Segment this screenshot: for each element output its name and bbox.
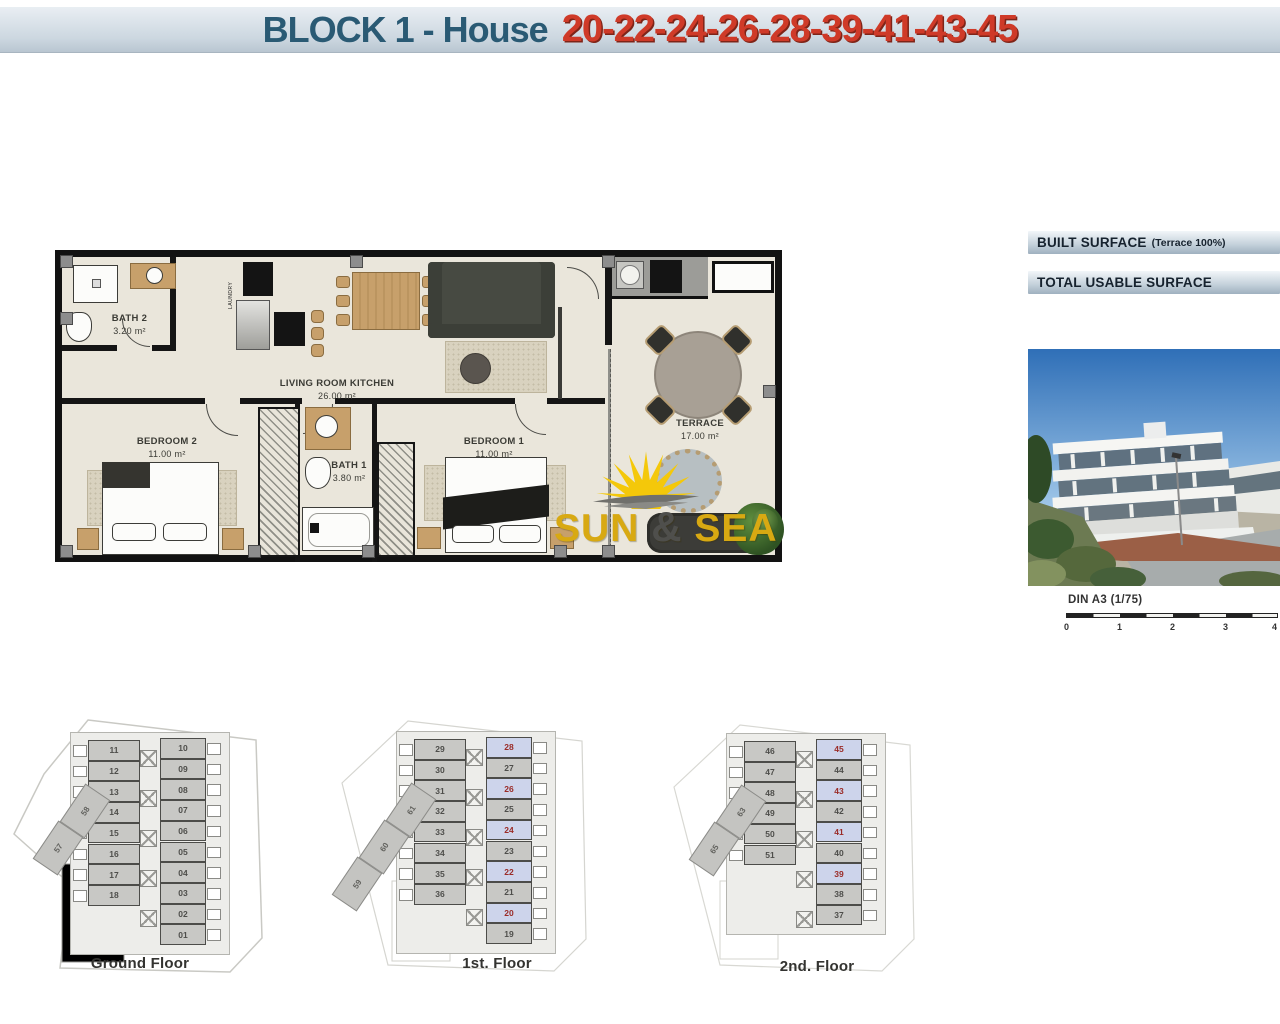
balcony-stub xyxy=(533,783,547,795)
balcony-stub xyxy=(207,929,221,941)
miniplan-ground-floor: 1112131415161718100908070605040302015857 xyxy=(26,720,266,986)
elevator-box xyxy=(466,869,483,886)
balcony-stub xyxy=(207,826,221,838)
unit-46: 46 xyxy=(744,741,796,762)
wall xyxy=(62,398,205,404)
unit-04: 04 xyxy=(160,862,206,883)
room-label-living: LIVING ROOM KITCHEN 26.00 m² xyxy=(247,377,427,404)
balcony-stub xyxy=(863,806,877,818)
unit-47: 47 xyxy=(744,762,796,783)
elevator-box xyxy=(796,751,813,768)
block-title: BLOCK 1 - House xyxy=(263,9,548,51)
door-arc xyxy=(515,404,546,435)
unit-01: 01 xyxy=(160,924,206,945)
elevator-box xyxy=(140,830,157,847)
balcony-stub xyxy=(533,846,547,858)
balcony-stub xyxy=(207,847,221,859)
balcony-stub xyxy=(73,745,87,757)
fridge xyxy=(243,262,273,296)
unit-34: 34 xyxy=(414,843,466,864)
unit-16: 16 xyxy=(88,844,140,865)
balcony-stub xyxy=(863,765,877,777)
kitchen-island xyxy=(274,312,305,346)
balcony-stub xyxy=(533,866,547,878)
scale-tick: 1 xyxy=(1117,622,1122,632)
unit-30: 30 xyxy=(414,760,466,781)
unit-36: 36 xyxy=(414,884,466,905)
house-numbers: 20-22-24-26-28-39-41-43-45 xyxy=(562,8,1018,51)
elevator-box xyxy=(140,750,157,767)
nightstand xyxy=(222,528,244,550)
scale-tick: 3 xyxy=(1223,622,1228,632)
pillar xyxy=(350,255,363,268)
unit-23: 23 xyxy=(486,841,532,862)
unit-21: 21 xyxy=(486,882,532,903)
pillow xyxy=(112,523,156,541)
second-floor-label: 2nd. Floor xyxy=(737,958,897,975)
pillar xyxy=(60,255,73,268)
unit-29: 29 xyxy=(414,739,466,760)
unit-39: 39 xyxy=(816,863,862,884)
balcony-stub xyxy=(533,887,547,899)
bath-tap xyxy=(310,523,319,533)
unit-50: 50 xyxy=(744,824,796,845)
unit-35: 35 xyxy=(414,863,466,884)
miniplan-1st-floor: 2930313233343536282726252423222120196160… xyxy=(352,719,592,985)
wall xyxy=(558,307,562,399)
ac-unit xyxy=(616,261,644,289)
elevator-box xyxy=(466,749,483,766)
pillow xyxy=(499,525,541,543)
elevator-box xyxy=(140,870,157,887)
unit-28: 28 xyxy=(486,737,532,758)
balcony-stub xyxy=(863,744,877,756)
balcony-stub xyxy=(533,742,547,754)
title-bar: BLOCK 1 - House 20-22-24-26-28-39-41-43-… xyxy=(0,7,1280,53)
building-photo xyxy=(1028,349,1280,586)
unit-05: 05 xyxy=(160,842,206,863)
room-label-terrace: TERRACE 17.00 m² xyxy=(650,417,750,444)
balcony-stub xyxy=(399,744,413,756)
balcony-stub xyxy=(207,888,221,900)
elevator-box xyxy=(796,831,813,848)
wall xyxy=(62,345,117,351)
balcony-stub xyxy=(207,743,221,755)
unit-20: 20 xyxy=(486,903,532,924)
unit-40: 40 xyxy=(816,843,862,864)
unit-11: 11 xyxy=(88,740,140,761)
built-surface-bar: BUILT SURFACE (Terrace 100%) xyxy=(1028,231,1280,254)
elevator-box xyxy=(796,871,813,888)
elevator-box xyxy=(466,829,483,846)
unit-25: 25 xyxy=(486,799,532,820)
balcony-stub xyxy=(863,848,877,860)
nightstand xyxy=(77,528,99,550)
balcony-stub xyxy=(207,805,221,817)
storage-box xyxy=(712,261,774,293)
elevator-box xyxy=(140,790,157,807)
unit-22: 22 xyxy=(486,861,532,882)
balcony-stub xyxy=(207,867,221,879)
bed2-throw xyxy=(102,462,150,488)
kitchen-cabinet xyxy=(236,300,270,350)
room-label-bath2: BATH 2 3.20 m² xyxy=(82,312,177,339)
door-arc xyxy=(206,404,238,436)
room-label-bedroom1: BEDROOM 1 11.00 m² xyxy=(434,435,554,462)
unit-10: 10 xyxy=(160,738,206,759)
balcony-stub xyxy=(729,850,743,862)
wardrobe xyxy=(258,407,300,557)
scale-tick: 0 xyxy=(1064,622,1069,632)
bath1-sink xyxy=(315,415,338,438)
dining-table xyxy=(352,272,420,330)
pillar xyxy=(248,545,261,558)
miniplan-2nd-floor: 4647484950514544434241403938376365 xyxy=(682,721,922,987)
elevator-box xyxy=(466,789,483,806)
unit-37: 37 xyxy=(816,905,862,926)
unit-06: 06 xyxy=(160,821,206,842)
balcony-stub xyxy=(207,784,221,796)
unit-27: 27 xyxy=(486,758,532,779)
balcony-stub xyxy=(533,804,547,816)
chair xyxy=(336,295,350,307)
unit-17: 17 xyxy=(88,864,140,885)
balcony-stub xyxy=(863,785,877,797)
pillar xyxy=(763,385,776,398)
scale-tick: 4 xyxy=(1272,622,1277,632)
unit-19: 19 xyxy=(486,923,532,944)
din-scale-label: DIN A3 (1/75) xyxy=(1068,594,1142,606)
balcony-stub xyxy=(533,908,547,920)
unit-38: 38 xyxy=(816,884,862,905)
unit-41: 41 xyxy=(816,822,862,843)
elevator-box xyxy=(466,909,483,926)
elevator-box xyxy=(796,911,813,928)
wall xyxy=(547,398,605,404)
chair xyxy=(336,276,350,288)
bath2-sink xyxy=(146,267,163,284)
wall xyxy=(605,257,612,345)
boiler xyxy=(650,260,682,293)
unit-03: 03 xyxy=(160,883,206,904)
sun-logo-icon xyxy=(562,445,730,509)
wall xyxy=(152,345,172,351)
balcony-stub xyxy=(533,928,547,940)
pouf xyxy=(460,353,491,384)
balcony-stub xyxy=(73,766,87,778)
sofa xyxy=(428,262,555,338)
balcony-stub xyxy=(399,765,413,777)
balcony-stub xyxy=(533,763,547,775)
main-floor-plan: LAUNDRY xyxy=(55,250,782,562)
unit-18: 18 xyxy=(88,885,140,906)
elevator-box xyxy=(796,791,813,808)
stool xyxy=(311,310,324,323)
unit-09: 09 xyxy=(160,759,206,780)
pillar xyxy=(362,545,375,558)
unit-15: 15 xyxy=(88,823,140,844)
watermark-text: SUN & SEA xyxy=(554,503,778,551)
pillar xyxy=(60,312,73,325)
room-label-bedroom2: BEDROOM 2 11.00 m² xyxy=(107,435,227,462)
stool xyxy=(311,344,324,357)
balcony-stub xyxy=(863,889,877,901)
balcony-stub xyxy=(863,910,877,922)
unit-44: 44 xyxy=(816,760,862,781)
nightstand xyxy=(417,527,441,549)
unit-08: 08 xyxy=(160,779,206,800)
chair xyxy=(336,314,350,326)
balcony-stub xyxy=(729,746,743,758)
stool xyxy=(311,327,324,340)
balcony-stub xyxy=(73,869,87,881)
pillar xyxy=(602,255,615,268)
unit-24: 24 xyxy=(486,820,532,841)
shower-drain xyxy=(92,279,101,288)
laundry-label: LAUNDRY xyxy=(228,267,234,309)
balcony-stub xyxy=(729,767,743,779)
unit-33: 33 xyxy=(414,822,466,843)
pillar xyxy=(60,545,73,558)
room-label-bath1: BATH 1 3.80 m² xyxy=(299,459,399,486)
entrance-door-arc xyxy=(567,267,599,299)
unit-26: 26 xyxy=(486,778,532,799)
page: BLOCK 1 - House 20-22-24-26-28-39-41-43-… xyxy=(0,0,1280,1024)
balcony-stub xyxy=(533,825,547,837)
balcony-stub xyxy=(399,848,413,860)
balcony-stub xyxy=(399,868,413,880)
unit-43: 43 xyxy=(816,780,862,801)
ground-floor-label: Ground Floor xyxy=(60,955,220,972)
balcony-stub xyxy=(207,909,221,921)
balcony-stub xyxy=(863,868,877,880)
balcony-stub xyxy=(73,849,87,861)
unit-07: 07 xyxy=(160,800,206,821)
pillow xyxy=(163,523,207,541)
unit-12: 12 xyxy=(88,761,140,782)
balcony-stub xyxy=(73,890,87,902)
scale-bar xyxy=(1066,613,1278,618)
unit-51: 51 xyxy=(744,845,796,866)
balcony-stub xyxy=(207,764,221,776)
total-usable-surface-bar: TOTAL USABLE SURFACE xyxy=(1028,271,1280,294)
unit-45: 45 xyxy=(816,739,862,760)
scale-tick: 2 xyxy=(1170,622,1175,632)
pillow xyxy=(452,525,494,543)
elevator-box xyxy=(140,910,157,927)
first-floor-label: 1st. Floor xyxy=(417,955,577,972)
balcony-stub xyxy=(863,827,877,839)
balcony-stub xyxy=(399,889,413,901)
unit-42: 42 xyxy=(816,801,862,822)
unit-02: 02 xyxy=(160,904,206,925)
